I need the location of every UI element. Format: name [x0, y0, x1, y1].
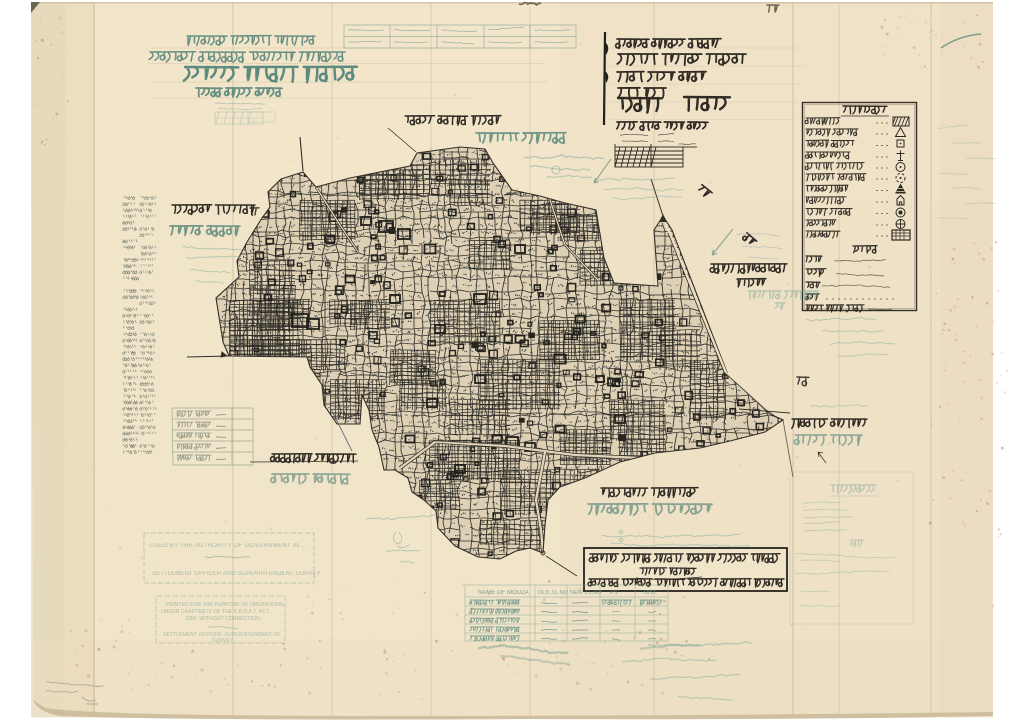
svg-text:NEW J.L.NO: NEW J.L.NO	[570, 590, 602, 596]
svg-text:1950, WITHOUT CORRECTION.: 1950, WITHOUT CORRECTION.	[185, 616, 261, 622]
svg-text:OLD J.L.NO: OLD J.L.NO	[538, 590, 569, 596]
svg-text:SURVEY: SURVEY	[212, 638, 234, 644]
svg-text:DIST: DIST	[644, 590, 657, 596]
svg-text:NAME OF MOUZA: NAME OF MOUZA	[478, 590, 529, 596]
svg-text:USED BY THE AUTHORITY OF GOVER: USED BY THE AUTHORITY OF GOVERNMENT IN .…	[150, 543, 307, 549]
svg-text:PRINTED FOR THE PURPOSE OF OPE: PRINTED FOR THE PURPOSE OF OPERATIONS	[166, 602, 284, 608]
svg-text:SETTLEMENT OFFICER AND SUPERIN: SETTLEMENT OFFICER AND SUPERINTENDENT SU…	[152, 571, 321, 577]
svg-text:UNDER CHAPTER IV OF THE E.B.S.: UNDER CHAPTER IV OF THE E.B.S.A.T. ACT,	[161, 609, 270, 615]
svg-text:PS.: PS.	[610, 590, 619, 596]
